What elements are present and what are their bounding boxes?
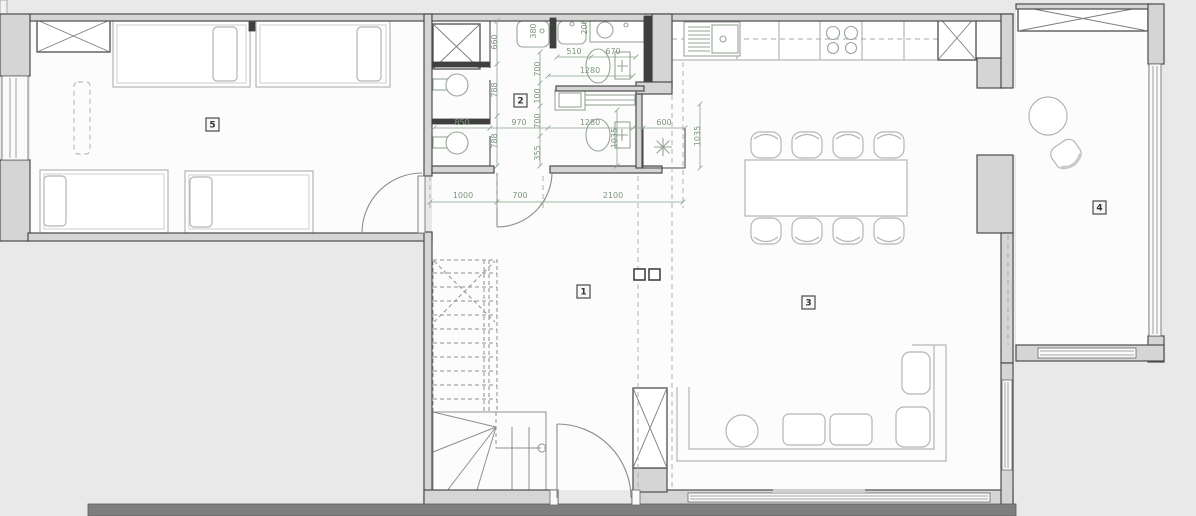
dim-label: 788 bbox=[490, 133, 499, 148]
room-number: 4 bbox=[1096, 204, 1102, 214]
room-number: 2 bbox=[517, 97, 523, 107]
chair bbox=[874, 132, 904, 158]
wall bbox=[633, 468, 667, 492]
dim-label: 1035 bbox=[610, 128, 619, 148]
wall bbox=[28, 233, 432, 241]
window-sill bbox=[773, 489, 865, 493]
cushion bbox=[896, 407, 930, 447]
dim-label: 1280 bbox=[580, 66, 600, 75]
wall bbox=[432, 14, 662, 21]
room-label-4: 4 bbox=[1093, 201, 1106, 214]
wall bbox=[550, 166, 662, 173]
wall bbox=[977, 58, 1003, 88]
dim-label: 100 bbox=[533, 88, 542, 103]
wall bbox=[424, 232, 432, 505]
cushion bbox=[902, 352, 930, 394]
window bbox=[1002, 380, 1012, 470]
dim-label: 2100 bbox=[603, 191, 623, 200]
pillow bbox=[44, 176, 66, 226]
room-label-2: 2 bbox=[514, 94, 527, 107]
wall bbox=[424, 490, 558, 505]
niche-floor bbox=[642, 94, 662, 168]
round-table bbox=[1029, 97, 1067, 135]
wc-icon bbox=[446, 132, 468, 154]
floor-plan-drawing: 510 670 1280 850 970 1280 600 660 788 78… bbox=[0, 0, 1196, 516]
pillow bbox=[357, 27, 381, 81]
wall bbox=[662, 14, 1013, 21]
room-label-5: 5 bbox=[206, 118, 219, 131]
dim-label: 670 bbox=[605, 47, 620, 56]
lower-floor-edge bbox=[88, 504, 1016, 516]
wall bbox=[424, 14, 432, 176]
dining-table bbox=[745, 160, 907, 216]
door-jamb bbox=[632, 490, 640, 505]
doorway-floor bbox=[1001, 88, 1016, 155]
dim-label: 850 bbox=[454, 118, 469, 127]
chair bbox=[792, 132, 822, 158]
wall bbox=[0, 160, 30, 241]
wall bbox=[1001, 233, 1013, 363]
dim-label: 700 bbox=[533, 61, 542, 76]
dim-label: 510 bbox=[566, 47, 581, 56]
stall-divider bbox=[432, 62, 490, 67]
shaft-marker-square bbox=[634, 269, 645, 280]
wall bbox=[1148, 4, 1164, 64]
chair bbox=[751, 132, 781, 158]
dim-label: 600 bbox=[656, 118, 671, 127]
wall bbox=[0, 14, 30, 76]
window bbox=[1038, 348, 1136, 358]
kitchen bbox=[672, 16, 976, 60]
drain-star-icon bbox=[654, 138, 672, 156]
dim-label: 1035 bbox=[693, 126, 702, 146]
room-label-1: 1 bbox=[577, 285, 590, 298]
wall-chunk bbox=[550, 18, 556, 48]
dim-label: 970 bbox=[511, 118, 526, 127]
chair bbox=[792, 218, 822, 244]
floor-plan-canvas: 510 670 1280 850 970 1280 600 660 788 78… bbox=[0, 0, 1196, 516]
room-label-3: 3 bbox=[802, 296, 815, 309]
dim-label: 200 bbox=[580, 19, 589, 34]
wall bbox=[28, 14, 432, 21]
room-number: 5 bbox=[209, 121, 215, 131]
room-number: 3 bbox=[805, 299, 811, 309]
dim-label: 380 bbox=[529, 23, 538, 38]
door-leaf bbox=[418, 176, 425, 233]
window bbox=[2, 76, 28, 160]
coffee-table bbox=[726, 415, 758, 447]
window bbox=[1149, 64, 1161, 336]
faucet-dot bbox=[624, 23, 628, 27]
wall bbox=[636, 94, 642, 168]
chair bbox=[833, 132, 863, 158]
dim-label: 788 bbox=[490, 82, 499, 97]
wall bbox=[977, 155, 1013, 233]
bed-divider bbox=[249, 21, 255, 31]
room4-floor bbox=[1016, 9, 1148, 345]
room-number: 1 bbox=[580, 288, 586, 298]
wall-chunk bbox=[644, 16, 652, 88]
wc-icon bbox=[446, 74, 468, 96]
pillow bbox=[190, 177, 212, 227]
wall bbox=[1001, 14, 1013, 88]
washbasin-drain bbox=[540, 29, 544, 33]
window bbox=[688, 493, 990, 502]
dim-label: 355 bbox=[533, 145, 542, 160]
round-basin-icon bbox=[597, 22, 613, 38]
shaft-marker-square bbox=[649, 269, 660, 280]
wall bbox=[1016, 4, 1152, 9]
dim-label: 700 bbox=[533, 113, 542, 128]
wall bbox=[556, 86, 644, 91]
cushion bbox=[830, 414, 872, 445]
chair bbox=[833, 218, 863, 244]
chair bbox=[874, 218, 904, 244]
wall bbox=[432, 166, 494, 173]
wall bbox=[652, 14, 672, 88]
dim-label: 1280 bbox=[580, 118, 600, 127]
dim-label: 1000 bbox=[453, 191, 473, 200]
drainboard-hatch bbox=[688, 27, 710, 51]
faucet-dot bbox=[570, 22, 574, 26]
sink-drain bbox=[720, 36, 726, 42]
pillow bbox=[213, 27, 237, 81]
chair bbox=[751, 218, 781, 244]
dim-label: 700 bbox=[512, 191, 527, 200]
dim-label: 660 bbox=[490, 34, 499, 49]
cushion bbox=[783, 414, 825, 445]
